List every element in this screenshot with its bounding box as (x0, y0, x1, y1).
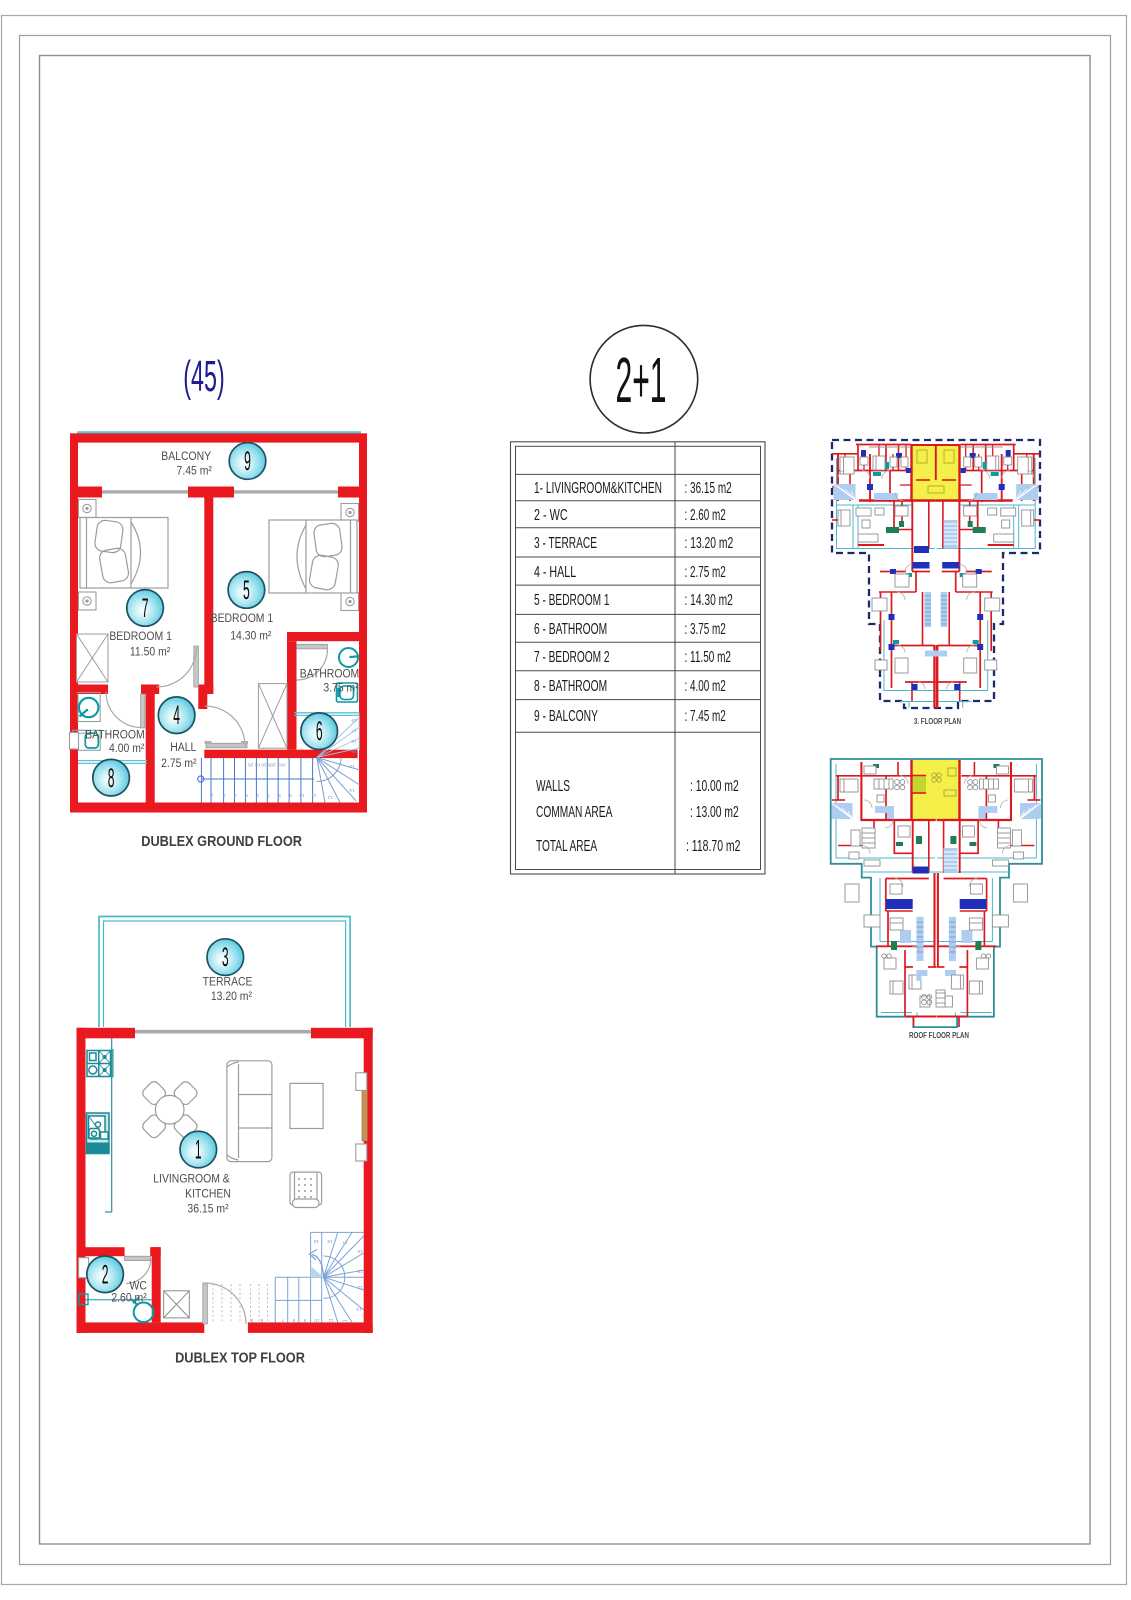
svg-text:3: 3 (222, 943, 229, 973)
svg-text:1: 1 (195, 1135, 202, 1165)
svg-text:3 - TERRACE: 3 - TERRACE (534, 534, 597, 552)
svg-text:17: 17 (342, 1240, 348, 1245)
svg-text:2: 2 (102, 1260, 109, 1290)
svg-text:14: 14 (349, 764, 355, 769)
svg-text:15: 15 (357, 1269, 363, 1274)
svg-text:11: 11 (328, 1318, 333, 1323)
svg-text:BEDROOM 1: BEDROOM 1 (109, 630, 172, 643)
svg-text:6: 6 (316, 717, 323, 747)
svg-text:: 14.30 m2: : 14.30 m2 (685, 591, 733, 609)
svg-text:4: 4 (234, 793, 237, 798)
svg-text:15: 15 (351, 749, 357, 754)
svg-text:1- LIVINGROOM&KITCHEN: 1- LIVINGROOM&KITCHEN (534, 479, 662, 497)
svg-text:13: 13 (349, 788, 355, 793)
svg-text:4.00 m²: 4.00 m² (109, 742, 145, 755)
svg-text:WALLS: WALLS (536, 777, 570, 795)
svg-text:HALL: HALL (170, 741, 196, 754)
svg-text:36.15 m²: 36.15 m² (187, 1203, 228, 1216)
svg-text:: 2.60 m2: : 2.60 m2 (685, 506, 726, 524)
svg-text:4 - HALL: 4 - HALL (534, 563, 576, 580)
svg-text:8: 8 (292, 1318, 295, 1323)
svg-text:2+1: 2+1 (615, 344, 666, 416)
svg-text:7: 7 (281, 1318, 284, 1323)
svg-text:16: 16 (357, 1249, 363, 1254)
svg-text:DUBLEX GROUND FLOOR: DUBLEX GROUND FLOOR (141, 833, 302, 849)
svg-text:8 - BATHROOM: 8 - BATHROOM (534, 677, 607, 695)
svg-text:12: 12 (342, 1319, 348, 1324)
svg-text:6: 6 (256, 793, 259, 798)
svg-text:14: 14 (357, 1285, 363, 1290)
svg-text:2: 2 (210, 793, 213, 798)
svg-text:LIVINGROOM &: LIVINGROOM & (153, 1173, 230, 1186)
svg-text:19: 19 (314, 1239, 320, 1244)
svg-text:10: 10 (314, 1318, 320, 1323)
svg-text:17: 17 (351, 728, 357, 733)
svg-text:18: 18 (327, 1239, 333, 1244)
svg-text:7: 7 (142, 594, 149, 624)
svg-text:12: 12 (327, 795, 333, 800)
svg-text:6 - BATHROOM: 6 - BATHROOM (534, 620, 607, 638)
svg-text:9: 9 (244, 447, 251, 477)
svg-text:: 13.20 m2: : 13.20 m2 (685, 534, 734, 552)
svg-text:3: 3 (223, 793, 226, 798)
svg-text:COMMAN AREA: COMMAN AREA (536, 803, 613, 821)
svg-text:BATHROOM: BATHROOM (300, 668, 359, 681)
svg-text:AV2 20h 16 bx 25: AV2 20h 16 bx 25 (248, 762, 286, 768)
svg-text:3. FLOOR PLAN: 3. FLOOR PLAN (914, 716, 961, 726)
svg-text:9: 9 (289, 793, 292, 798)
svg-text:7: 7 (267, 793, 270, 798)
svg-text:TOTAL AREA: TOTAL AREA (536, 837, 597, 855)
svg-text:9: 9 (303, 1318, 306, 1323)
svg-text:5: 5 (245, 793, 248, 798)
svg-text:: 10.00 m2: : 10.00 m2 (690, 777, 739, 795)
svg-text:13.20 m²: 13.20 m² (211, 990, 252, 1003)
svg-text:11.50 m²: 11.50 m² (130, 646, 171, 659)
svg-text:BATHROOM: BATHROOM (85, 729, 144, 742)
svg-text:6: 6 (260, 1318, 263, 1323)
svg-text:4: 4 (173, 701, 180, 731)
svg-text:: 2.75 m2: : 2.75 m2 (685, 563, 726, 581)
svg-text:(45): (45) (183, 352, 224, 401)
svg-text:: 3.75 m2: : 3.75 m2 (685, 620, 726, 638)
svg-text:5: 5 (250, 1318, 253, 1323)
svg-text:DUBLEX TOP FLOOR: DUBLEX TOP FLOOR (175, 1350, 305, 1366)
svg-text:8: 8 (278, 793, 281, 798)
svg-text:9 - BALCONY: 9 - BALCONY (534, 707, 598, 725)
svg-text:: 11.50 m2: : 11.50 m2 (685, 648, 731, 666)
svg-text:7.45 m²: 7.45 m² (177, 465, 213, 478)
svg-text:2.60 m²: 2.60 m² (111, 1292, 147, 1305)
svg-text:KITCHEN: KITCHEN (185, 1188, 231, 1201)
svg-text:BEDROOM 1: BEDROOM 1 (211, 613, 274, 626)
svg-text:7 - BEDROOM 2: 7 - BEDROOM 2 (534, 648, 610, 666)
svg-text:WC: WC (130, 1280, 147, 1293)
svg-text:2.75 m²: 2.75 m² (161, 757, 197, 770)
svg-text:10: 10 (299, 793, 305, 798)
svg-text:TERRACE: TERRACE (203, 976, 253, 989)
svg-text:3.75 m²: 3.75 m² (323, 682, 359, 695)
svg-text:: 118.70 m2: : 118.70 m2 (686, 837, 740, 855)
svg-text:5 - BEDROOM 1: 5 - BEDROOM 1 (534, 591, 610, 609)
svg-text:8: 8 (108, 764, 115, 794)
svg-text:: 36.15 m2: : 36.15 m2 (685, 479, 732, 497)
svg-text:: 4.00 m2: : 4.00 m2 (685, 677, 726, 695)
svg-text:14.30 m²: 14.30 m² (230, 630, 271, 643)
svg-text:BALCONY: BALCONY (161, 450, 211, 463)
svg-text:18: 18 (351, 718, 357, 723)
svg-text:13: 13 (356, 1307, 362, 1312)
svg-text:2 - WC: 2 - WC (534, 506, 568, 523)
svg-text:: 7.45 m2: : 7.45 m2 (685, 707, 726, 725)
svg-text:: 13.00 m2: : 13.00 m2 (690, 803, 739, 821)
svg-text:5: 5 (243, 576, 250, 606)
svg-text:11: 11 (311, 793, 316, 798)
svg-text:ROOF FLOOR PLAN: ROOF FLOOR PLAN (909, 1030, 969, 1040)
svg-text:16: 16 (351, 739, 357, 744)
